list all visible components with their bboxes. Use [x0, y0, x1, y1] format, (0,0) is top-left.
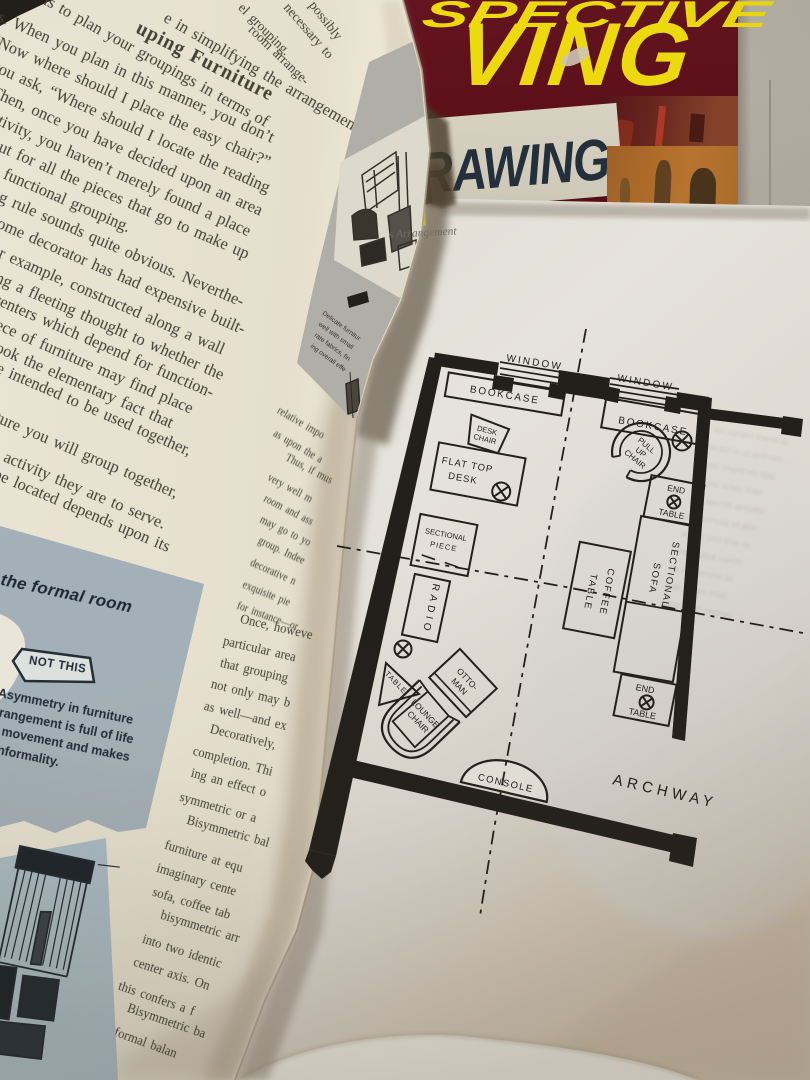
svg-text:ra stel emna ot: ra stel emna ot	[669, 563, 733, 585]
svg-text:ARCHWAY: ARCHWAY	[611, 771, 719, 812]
svg-text:SOFA: SOFA	[646, 562, 662, 595]
svg-text:DESK: DESK	[447, 471, 478, 487]
svg-text:RADIO: RADIO	[420, 583, 442, 636]
svg-text:END: END	[635, 682, 656, 696]
svg-text:END: END	[667, 483, 687, 496]
svg-text:PIECE: PIECE	[429, 539, 458, 553]
svg-text:s Arrangement: s Arrangement	[389, 225, 458, 241]
svg-text:TABLE: TABLE	[581, 573, 599, 611]
